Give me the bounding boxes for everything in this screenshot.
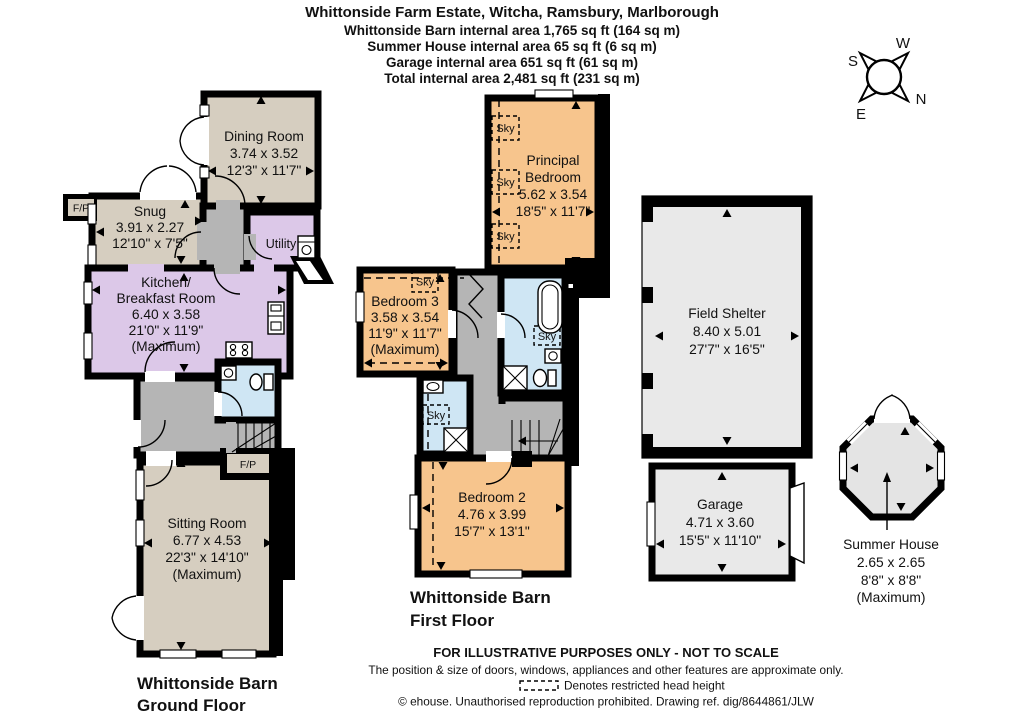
summer-house-name: Summer House bbox=[843, 537, 939, 552]
window bbox=[88, 245, 96, 265]
sitting-room-imperial: 22'3" x 14'10" bbox=[165, 550, 248, 565]
bedroom2-metric: 4.76 x 3.99 bbox=[458, 507, 527, 522]
total-area-line: Total internal area 2,481 sq ft (231 sq … bbox=[384, 71, 640, 86]
dining-room-imperial: 12'3" x 11'7" bbox=[227, 163, 302, 178]
first-floor-caption-1: Whittonside Barn bbox=[410, 588, 551, 607]
bedroom3-metric: 3.58 x 3.54 bbox=[371, 310, 440, 325]
floorplan-canvas: Whittonside Farm Estate, Witcha, Ramsbur… bbox=[0, 0, 1024, 724]
french-door-opening bbox=[136, 596, 144, 640]
snug-imperial: 12'10" x 7'5" bbox=[112, 236, 188, 251]
kitchen-imperial: 21'0" x 11'9" bbox=[129, 323, 204, 338]
toilet-icon bbox=[534, 370, 557, 387]
footer-restricted-key: Denotes restricted head height bbox=[564, 679, 725, 693]
window bbox=[410, 495, 418, 529]
ground-floor-caption-1: Whittonside Barn bbox=[137, 674, 278, 693]
wall-segment bbox=[642, 196, 812, 207]
snug-fireplace-label: F/P bbox=[73, 203, 89, 215]
window bbox=[840, 452, 847, 480]
field-shelter-metric: 8.40 x 5.01 bbox=[693, 324, 761, 339]
ground-floor-caption-2: Ground Floor bbox=[137, 696, 246, 715]
window bbox=[222, 650, 256, 658]
window bbox=[160, 650, 196, 658]
bath-icon bbox=[538, 281, 562, 333]
garage-area-line: Garage internal area 651 sq ft (61 sq m) bbox=[386, 55, 638, 70]
first-floor-caption-2: First Floor bbox=[410, 611, 494, 630]
summer-house-note: (Maximum) bbox=[857, 590, 926, 605]
fridge-icon bbox=[268, 302, 284, 334]
window bbox=[647, 502, 655, 546]
compass-north-label: N bbox=[916, 91, 927, 108]
sink-icon bbox=[545, 349, 561, 363]
window bbox=[938, 452, 945, 480]
wall-post bbox=[642, 434, 653, 458]
window bbox=[200, 167, 209, 178]
floorplan-page: Whittonside Farm Estate, Witcha, Ramsbur… bbox=[0, 0, 1024, 724]
wall-opening bbox=[254, 264, 274, 273]
door-opening bbox=[497, 312, 505, 338]
sitting-room-metric: 6.77 x 4.53 bbox=[173, 533, 242, 548]
first-floor-plan: Sky Sky Sky Sky Sky Sky bbox=[356, 90, 610, 630]
ground-floor-plan: Dining Room 3.74 x 3.52 12'3" x 11'7" Sn… bbox=[63, 94, 334, 715]
principal-bedroom-name-1: Principal bbox=[527, 153, 580, 168]
principal-bedroom-imperial: 18'5" x 11'7" bbox=[516, 204, 591, 219]
skylight-label: Sky bbox=[427, 410, 446, 422]
french-door-arc bbox=[169, 166, 196, 192]
sitting-room-name: Sitting Room bbox=[168, 516, 247, 531]
bedroom3-imperial: 11'9" x 11'7" bbox=[368, 326, 442, 341]
wall-post bbox=[642, 373, 653, 389]
shower-icon bbox=[503, 366, 527, 390]
garage-name: Garage bbox=[697, 497, 743, 512]
bedroom2-imperial: 15'7" x 13'1" bbox=[454, 524, 530, 539]
door-opening bbox=[244, 234, 256, 260]
window bbox=[200, 105, 209, 116]
bedroom3-name: Bedroom 3 bbox=[371, 294, 439, 309]
wall-post bbox=[642, 287, 653, 303]
sink-icon bbox=[221, 366, 236, 380]
window bbox=[470, 570, 522, 578]
snug-name: Snug bbox=[134, 204, 166, 219]
sink-icon bbox=[423, 380, 443, 393]
compass-circle-icon bbox=[867, 60, 901, 94]
hob-icon bbox=[226, 342, 252, 358]
skylight-label: Sky bbox=[496, 231, 515, 243]
title-block: Whittonside Farm Estate, Witcha, Ramsbur… bbox=[305, 4, 719, 86]
skylight-label: Sky bbox=[416, 277, 435, 289]
skylight-label: Sky bbox=[496, 177, 515, 189]
field-shelter-plan: Field Shelter 8.40 x 5.01 27'7" x 16'5" bbox=[642, 196, 812, 458]
window bbox=[136, 470, 144, 500]
principal-bedroom-name-2: Bedroom bbox=[525, 170, 581, 185]
door-opening bbox=[486, 451, 512, 462]
dining-room-name: Dining Room bbox=[224, 129, 304, 144]
french-door-arc bbox=[112, 596, 136, 618]
garage-plan: Garage 4.71 x 3.60 15'5" x 11'10" bbox=[647, 466, 804, 578]
door-opening bbox=[197, 222, 209, 260]
summer-house-plan: Summer House 2.65 x 2.65 8'8" x 8'8" (Ma… bbox=[840, 395, 945, 605]
field-shelter-imperial: 27'7" x 16'5" bbox=[689, 342, 765, 357]
kitchen-name-2: Breakfast Room bbox=[117, 291, 216, 306]
sitting-room-note: (Maximum) bbox=[173, 567, 242, 582]
wall-segment bbox=[565, 288, 579, 398]
door-opening bbox=[874, 415, 910, 423]
skylight-label: Sky bbox=[496, 123, 515, 135]
window bbox=[535, 90, 573, 98]
garage-door-icon bbox=[790, 483, 804, 563]
footer-copyright: © ehouse. Unauthorised reproduction proh… bbox=[398, 695, 815, 709]
kitchen-name-1: Kitchen/ bbox=[141, 275, 191, 290]
snug-metric: 3.91 x 2.27 bbox=[116, 220, 184, 235]
compass-rose: W S N E bbox=[848, 35, 926, 123]
wall-segment bbox=[512, 451, 532, 467]
footer-block: FOR ILLUSTRATIVE PURPOSES ONLY - NOT TO … bbox=[368, 645, 843, 709]
summer-house-imperial: 8'8" x 8'8" bbox=[861, 573, 921, 588]
door-opening bbox=[448, 310, 456, 338]
wall-segment bbox=[801, 196, 812, 458]
restricted-head-height-key-icon bbox=[520, 681, 558, 690]
principal-bedroom-metric: 5.62 x 3.54 bbox=[519, 187, 588, 202]
window bbox=[356, 292, 364, 322]
french-door-opening bbox=[200, 117, 209, 165]
washing-machine-icon bbox=[298, 236, 315, 258]
summer-house-metric: 2.65 x 2.65 bbox=[857, 555, 926, 570]
dining-room-metric: 3.74 x 3.52 bbox=[230, 146, 298, 161]
french-door-arc bbox=[140, 166, 167, 192]
wall-segment bbox=[642, 447, 812, 458]
room-vestibule bbox=[203, 206, 250, 270]
compass-west-label: W bbox=[896, 35, 911, 52]
door-opening bbox=[214, 262, 240, 274]
summer-house-area-line: Summer House internal area 65 sq ft (6 s… bbox=[367, 39, 657, 54]
door-opening bbox=[145, 371, 175, 382]
door-opening bbox=[214, 392, 222, 416]
french-door-arc bbox=[112, 618, 136, 640]
door-opening bbox=[216, 200, 240, 212]
garage-metric: 4.71 x 3.60 bbox=[686, 515, 755, 530]
french-door-opening bbox=[140, 192, 196, 200]
window bbox=[136, 520, 144, 546]
window bbox=[84, 282, 92, 304]
kitchen-metric: 6.40 x 3.58 bbox=[132, 307, 201, 322]
compass-east-label: E bbox=[856, 106, 866, 123]
utility-name: Utility bbox=[266, 237, 297, 251]
estate-title: Whittonside Farm Estate, Witcha, Ramsbur… bbox=[305, 4, 719, 21]
footer-disclaimer-bold: FOR ILLUSTRATIVE PURPOSES ONLY - NOT TO … bbox=[433, 645, 779, 660]
wall-segment bbox=[598, 94, 610, 272]
footer-approximate-note: The position & size of doors, windows, a… bbox=[368, 663, 843, 677]
wall-opening bbox=[226, 422, 236, 453]
wall-post bbox=[642, 196, 653, 222]
wall-segment bbox=[565, 394, 579, 466]
barn-area-line: Whittonside Barn internal area 1,765 sq … bbox=[344, 23, 680, 38]
wall-segment bbox=[269, 580, 283, 656]
wall-opening bbox=[128, 264, 164, 273]
bedroom2-name: Bedroom 2 bbox=[458, 490, 526, 505]
wall-opening bbox=[497, 404, 509, 454]
kitchen-note: (Maximum) bbox=[132, 339, 201, 354]
field-shelter-name: Field Shelter bbox=[688, 306, 766, 321]
compass-south-label: S bbox=[848, 53, 858, 70]
garage-imperial: 15'5" x 11'10" bbox=[679, 533, 761, 548]
shower-icon bbox=[444, 428, 468, 452]
window bbox=[88, 204, 96, 224]
bedroom3-note: (Maximum) bbox=[371, 342, 440, 357]
front-door-opening bbox=[133, 420, 141, 447]
sitting-fireplace-label: F/P bbox=[240, 459, 256, 471]
window bbox=[84, 333, 92, 359]
